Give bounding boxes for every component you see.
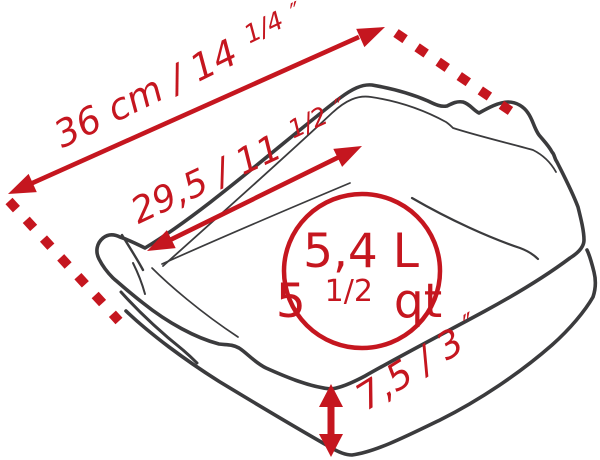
arrowhead-lower-left	[8, 174, 37, 194]
product-dimension-diagram: 36 cm / 14 1/4 ″ 29,5 / 11 1/2 ″ 7,5 / 3…	[0, 0, 600, 460]
floor-corner-left	[152, 268, 238, 337]
rim-lip-line	[121, 292, 197, 363]
arrowhead-upper-right	[333, 146, 362, 167]
floor-edge-right	[412, 198, 538, 259]
measurement-graphics	[8, 27, 512, 457]
height-arrow	[319, 384, 343, 457]
dashed-extension-bottom-left	[9, 201, 119, 321]
arrowhead-lower-left	[147, 230, 176, 251]
left-handle-fold-line	[133, 263, 145, 294]
arrowhead-upper-right	[356, 27, 385, 47]
capacity-liters: 5,4 L	[303, 224, 419, 279]
dashed-extension-top-right	[396, 33, 512, 112]
